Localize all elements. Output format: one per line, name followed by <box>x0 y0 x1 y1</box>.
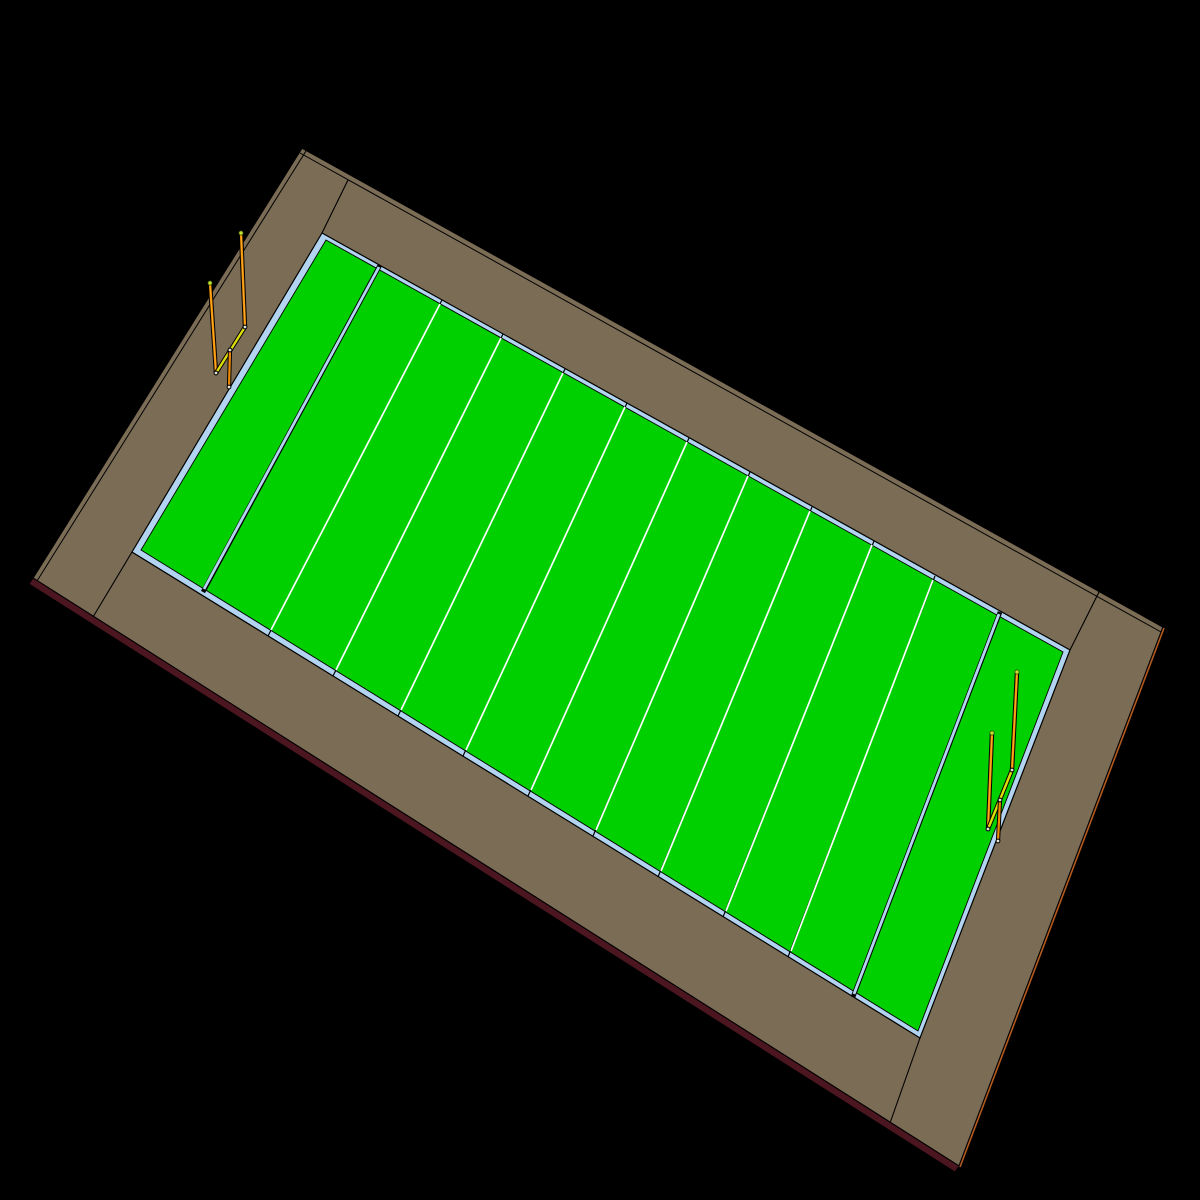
goalpost-right-tip-far <box>990 731 994 735</box>
goalpost-right-joint-node-d <box>996 839 1000 843</box>
goalpost-left-joint-node-c <box>214 371 218 375</box>
goalpost-left-joint-node-a <box>243 325 247 329</box>
goalpost-left-tip-near <box>239 231 243 235</box>
goalpost-right-joint-node-b <box>998 798 1002 802</box>
goalpost-right-tip-near <box>1015 670 1019 674</box>
scene-svg <box>0 0 1200 1200</box>
goalpost-left-joint-node-d <box>227 385 231 389</box>
goalpost-right-joint-node-a <box>1010 768 1014 772</box>
goalpost-right-joint-node-c <box>986 827 990 831</box>
goalpost-left-tip-far <box>208 281 212 285</box>
goalpost-left-center-post <box>229 350 230 387</box>
goalpost-left-joint-node-b <box>228 348 232 352</box>
3d-model-viewport <box>0 0 1200 1200</box>
